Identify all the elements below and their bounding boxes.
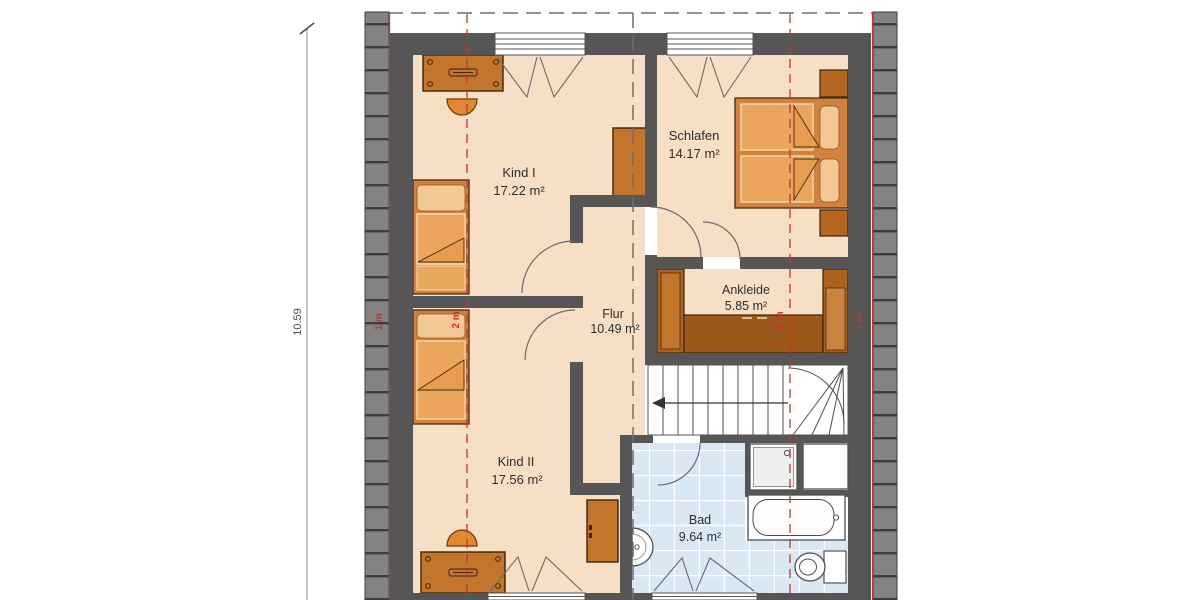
storage-niche	[803, 444, 848, 489]
wardrobe-bottom	[684, 315, 823, 353]
wardrobe-right-front	[826, 288, 845, 350]
stairs	[648, 365, 848, 435]
exterior-wall-bottom	[390, 593, 871, 600]
room-label-schlafen: Schlafen	[669, 128, 720, 143]
wall-bad-north-left	[620, 435, 653, 443]
wall-ankleide-north-left	[657, 257, 703, 269]
chimney-block	[613, 128, 647, 197]
room-area-ankleide: 5.85 m²	[725, 299, 767, 313]
room-area-kind2: 17.56 m²	[491, 472, 543, 487]
wall-shower-divider	[797, 443, 803, 490]
desk	[423, 55, 503, 91]
room-area-kind1: 17.22 m²	[493, 183, 545, 198]
room-area-schlafen: 14.17 m²	[668, 146, 720, 161]
floorplan-page: 10.59	[0, 0, 1200, 600]
exterior-wall-top	[390, 33, 871, 55]
exterior-wall-left	[390, 33, 413, 600]
wall-ankleide-north-right	[740, 257, 848, 269]
dimension-label: 10.59	[292, 308, 304, 336]
nightstand	[820, 70, 848, 97]
room-area-flur: 10.49 m²	[590, 322, 639, 336]
wardrobe	[587, 500, 618, 562]
bad-door-threshold	[653, 435, 700, 443]
wall-shower-left	[745, 443, 750, 490]
eave-hatch-left	[365, 12, 389, 600]
bathtub	[748, 495, 845, 540]
wardrobe-handle	[589, 533, 592, 538]
room-label-ankleide: Ankleide	[722, 283, 770, 297]
wall-schlafen-west-lower	[645, 255, 657, 365]
wall-ankleide-south	[645, 353, 848, 365]
room-area-bad: 9.64 m²	[679, 530, 721, 544]
eave-hatch-right	[873, 12, 897, 600]
wall-kind1-kind2	[413, 296, 583, 308]
desk	[421, 552, 505, 593]
wall-bad-north-right	[700, 435, 848, 443]
room-label-kind2: Kind II	[498, 454, 535, 469]
height-marker-2m-left: 2 m	[451, 311, 462, 328]
wall-flur-west-lower	[570, 362, 583, 483]
height-marker-1m-left: 1 m	[374, 313, 385, 330]
room-label-bad: Bad	[689, 513, 711, 527]
wall-schlafen-west-upper	[645, 55, 657, 207]
room-label-flur: Flur	[602, 307, 624, 321]
wardrobe-handle	[589, 525, 592, 530]
room-label-kind1: Kind I	[502, 165, 535, 180]
wardrobe-left-front	[661, 273, 680, 349]
bed	[413, 180, 469, 294]
floorplan-drawing: 10.59	[0, 0, 1200, 600]
wall-flur-north	[570, 195, 657, 207]
height-marker-1m-right: 1 m	[854, 313, 865, 330]
nightstand	[820, 210, 848, 236]
wall-bad-west	[620, 435, 632, 593]
height-marker-2m-right: 2 m	[775, 311, 786, 328]
double-bed	[735, 98, 848, 208]
dimension-line: 10.59	[292, 23, 314, 600]
